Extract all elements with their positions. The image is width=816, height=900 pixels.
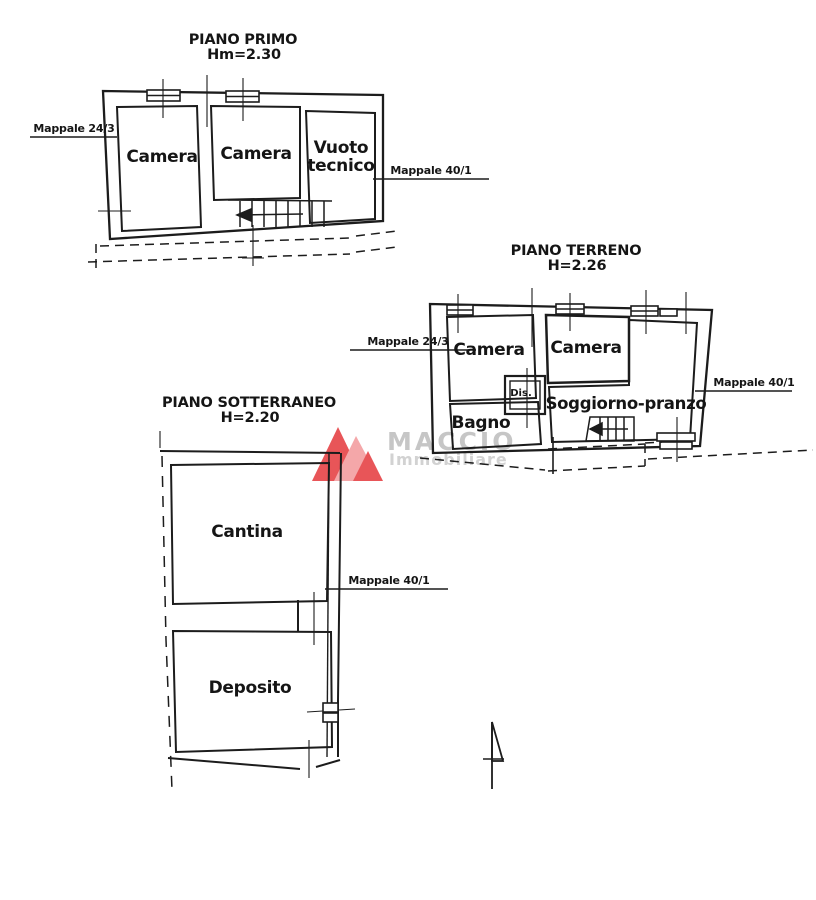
primo-camera-mid-wall [211, 106, 300, 200]
terreno-staircase [586, 417, 634, 441]
dashed-line [548, 466, 645, 471]
floorplan-linework [0, 0, 816, 900]
window-icon [323, 713, 338, 722]
terreno-outer-wall [430, 304, 712, 453]
window-icon [660, 442, 692, 449]
primo-camera-left-wall [117, 106, 201, 231]
sott-bottom-wall [316, 760, 340, 767]
piano-sotterraneo-plan [160, 431, 448, 790]
terreno-windows [447, 304, 695, 449]
north-arrow-icon [483, 722, 504, 789]
sott-top-wall [160, 451, 340, 453]
stair-direction-arrow-icon [237, 209, 251, 221]
terreno-camera-mid-wall [546, 315, 629, 383]
primo-vuoto-tecnico-wall [306, 111, 375, 223]
piano-primo-plan [30, 75, 489, 272]
window-icon [323, 703, 338, 712]
dashed-line [100, 238, 350, 246]
maccio-mountains-logo-icon [312, 427, 383, 481]
dashed-line [648, 450, 813, 459]
terreno-dashed-outline [420, 442, 813, 471]
dashed-line [88, 254, 350, 262]
stair-direction-arrow-icon [590, 423, 602, 435]
terreno-camera-left-wall [447, 315, 536, 401]
floorplan-sheet: MACCIO Immobiliare [0, 0, 816, 900]
window-icon [657, 433, 695, 441]
dashed-line [356, 231, 397, 236]
dashed-line [356, 247, 397, 252]
sott-cantina-wall [171, 463, 329, 604]
north-arrow-head [492, 722, 503, 761]
sott-bottom-wall [168, 758, 300, 769]
piano-terreno-plan [350, 288, 813, 474]
sott-dashed-boundary [162, 456, 172, 790]
sott-deposito-wall [173, 631, 332, 752]
stair-edge [228, 200, 332, 201]
dashed-line [420, 458, 545, 470]
window-icon [660, 309, 677, 316]
sott-windows [323, 703, 338, 722]
